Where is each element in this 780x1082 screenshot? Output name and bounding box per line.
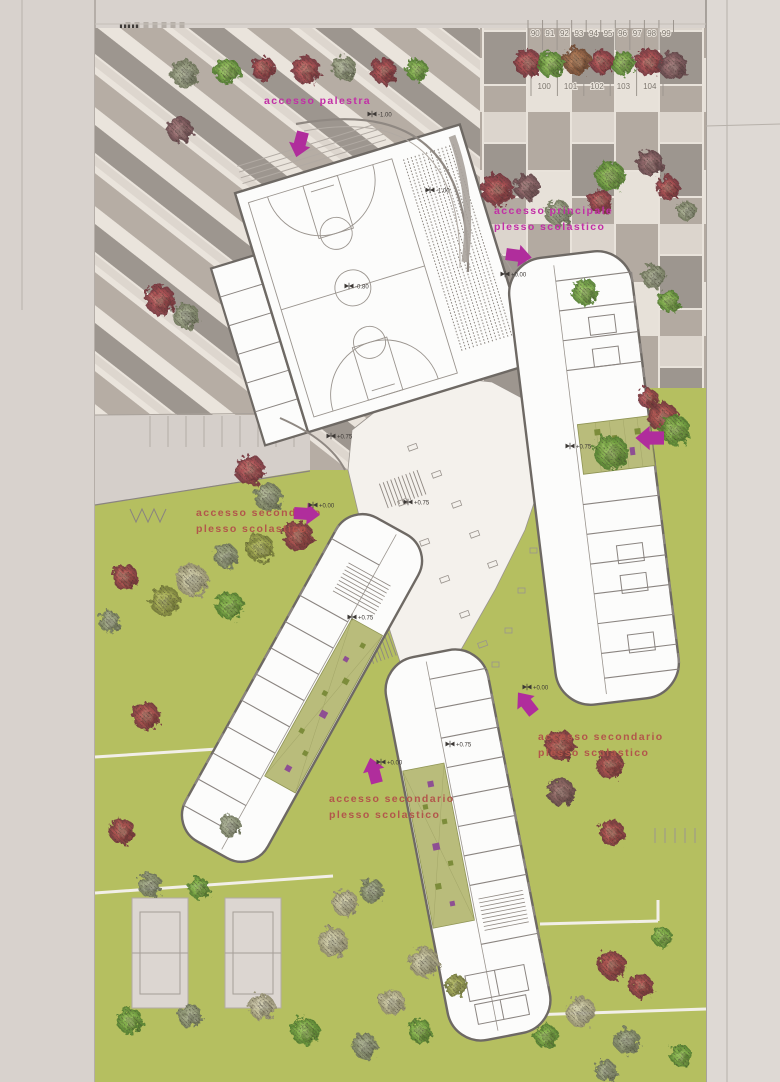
tree — [371, 58, 397, 84]
tree — [171, 60, 199, 88]
tree — [167, 117, 193, 143]
elevation-value: +0.75 — [576, 445, 592, 451]
tree — [214, 58, 240, 84]
tree — [670, 1045, 692, 1067]
elevation-value: +0.00 — [319, 504, 335, 510]
elevation-value: +0.00 — [511, 273, 527, 279]
parking-number: 103 — [617, 82, 631, 91]
tree — [572, 279, 598, 305]
tree — [178, 1004, 202, 1028]
tree — [514, 174, 540, 200]
parking-number: 104 — [643, 82, 657, 91]
tree — [590, 50, 614, 74]
tree — [659, 52, 687, 80]
parking-number: 98 — [647, 29, 656, 38]
tree — [595, 1060, 617, 1082]
parking-number: 95 — [604, 29, 613, 38]
tree — [150, 586, 180, 616]
tree — [246, 534, 274, 562]
access-label-secondario-sud: accesso secondario — [329, 793, 455, 805]
tree — [249, 994, 275, 1020]
parking-number: 90 — [531, 29, 540, 38]
tree — [352, 1033, 378, 1059]
elevation-value: -1.00 — [436, 189, 450, 195]
tree — [173, 303, 199, 329]
tree — [214, 544, 238, 568]
elevation-value: +0.75 — [358, 616, 374, 622]
road-east — [706, 0, 780, 1082]
tree — [660, 415, 690, 445]
tree — [406, 59, 428, 81]
tree — [332, 56, 356, 80]
tree — [595, 161, 625, 191]
access-label-secondario-est: accesso secondario — [538, 731, 664, 743]
tree — [652, 927, 672, 947]
parking-number: 99 — [662, 29, 671, 38]
tree — [629, 974, 653, 998]
tree — [534, 1024, 558, 1048]
tree — [112, 564, 138, 590]
tree — [514, 49, 542, 77]
tree — [216, 592, 244, 620]
access-label-principale: plesso scolastico — [494, 221, 605, 233]
tree — [635, 48, 663, 76]
tree — [677, 201, 697, 221]
tree — [291, 1017, 319, 1045]
tree — [219, 815, 241, 837]
elevation-value: +0.75 — [456, 743, 472, 749]
elevation-value: +0.75 — [414, 501, 430, 507]
tennis-court-1 — [132, 898, 188, 1008]
tree — [481, 174, 513, 206]
tree — [379, 989, 405, 1015]
tree — [594, 435, 628, 469]
elevation-value: -1.00 — [378, 113, 392, 119]
tree — [318, 927, 348, 957]
tree — [599, 820, 625, 846]
parking-number: 91 — [545, 29, 554, 38]
access-label-secondario-est: plesso scolastico — [538, 747, 649, 759]
tree — [109, 818, 135, 844]
tree — [658, 290, 680, 312]
tree — [563, 47, 591, 75]
tree — [332, 890, 358, 916]
tree — [176, 564, 208, 596]
tree — [538, 51, 564, 77]
tree — [566, 997, 596, 1027]
elevation-value: -0.80 — [355, 285, 369, 291]
tree — [611, 51, 635, 75]
access-label-secondario-ovest: plesso scolastico — [196, 523, 307, 535]
parking-number: 94 — [589, 29, 598, 38]
tree — [360, 879, 384, 903]
parking-number: 96 — [618, 29, 627, 38]
access-label-palestra: accesso palestra — [264, 95, 371, 107]
tree — [642, 265, 666, 289]
tree — [188, 877, 210, 899]
tree — [251, 56, 275, 80]
elevation-value: +0.00 — [533, 686, 549, 692]
tree — [637, 150, 663, 176]
tree — [409, 947, 439, 977]
tree — [547, 778, 575, 806]
tree — [445, 975, 467, 997]
tree — [117, 1008, 143, 1034]
elevation-value: +0.00 — [387, 761, 403, 767]
parking-number: 97 — [633, 29, 642, 38]
tree — [292, 56, 320, 84]
site-plan-drawing: 90919293949596979899100101102103104 acce… — [0, 0, 780, 1082]
parking-number: 93 — [574, 29, 583, 38]
parking-number: 102 — [590, 82, 604, 91]
tree — [99, 611, 121, 633]
tree — [145, 285, 175, 315]
tennis-court-2 — [225, 898, 281, 1008]
tree — [614, 1028, 640, 1054]
tree — [656, 176, 680, 200]
tree — [408, 1019, 432, 1043]
access-label-secondario-sud: plesso scolastico — [329, 809, 440, 821]
tree — [235, 455, 265, 485]
parking-number: 100 — [538, 82, 552, 91]
parking-number: 101 — [564, 82, 578, 91]
access-label-principale: accesso principale — [494, 205, 613, 217]
tree — [132, 702, 160, 730]
site-plan-canvas: 90919293949596979899100101102103104 acce… — [0, 0, 780, 1082]
elevation-value: +0.75 — [337, 435, 353, 441]
tree — [138, 873, 162, 897]
tree — [598, 951, 626, 979]
parking-number: 92 — [560, 29, 569, 38]
